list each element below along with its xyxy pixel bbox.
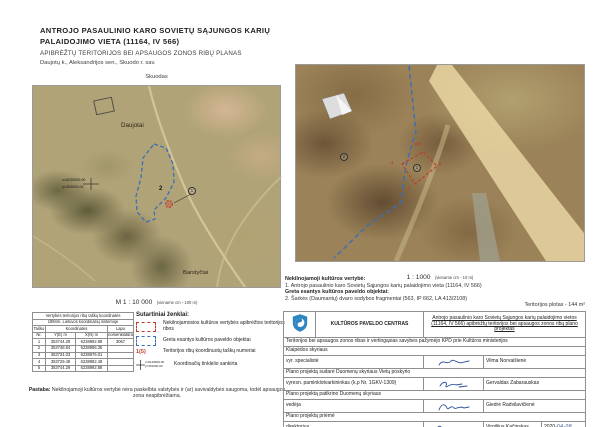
overview-scale-value: M 1 : 10 000 (116, 299, 153, 306)
coord-nr: 4 (33, 359, 46, 366)
coord-row: 4 353729.48 6238982.48 (33, 359, 134, 366)
signature-4-icon (434, 423, 474, 427)
approval-header-row: KULTŪROS PAVELDO CENTRAS Antrojo pasauli… (284, 312, 586, 338)
role-director: direktorius (284, 422, 424, 427)
signature-cell-4 (424, 422, 484, 427)
boundary-point-label-2: 2 (439, 161, 441, 166)
coord-sheet (108, 345, 134, 352)
town-label-barstyciai: Barstyčiai (183, 270, 208, 276)
grid-cross-icon: x=6129600.00 y=391000.00 (136, 359, 174, 371)
col-header-y: Y(E) m (46, 332, 76, 339)
heritage-values-block: Nekilnojamoji kultūros vertybė: 1. Antro… (285, 276, 585, 302)
role-chief-specialist: vyr. specialistė (284, 356, 424, 369)
col-header-x: X(N) m (76, 332, 108, 339)
legend-item-1-label: Nekilnojamosios kultūros vertybės apibrė… (163, 321, 286, 332)
signature-cell-2 (424, 378, 484, 391)
coord-sheet (108, 365, 134, 372)
coord-table-title: Vertybės teritorijos ribų taškų koordina… (33, 313, 134, 320)
approval-signature-row: direktorius Virgilijus Kačinskas 2020-04… (284, 422, 586, 427)
object-1-circled-number: 1 (413, 164, 421, 172)
coord-table-header-row-1: Taško Koordinatės Lapo (33, 326, 134, 333)
kpc-shield-logo-icon (292, 313, 308, 333)
note-label: Pastaba: (29, 387, 51, 393)
coord-x: 6238986.36 (76, 345, 108, 352)
heritage-territory-boundary-blue (136, 144, 174, 222)
map-legend: Sutartiniai ženklai: Nekilnojamosios kul… (136, 312, 286, 374)
col-header-coords: Koordinatės (46, 326, 108, 333)
role-senior-conservator: vyresn. paminklotvarkininkas (k.p Nr. 1G… (284, 378, 424, 391)
approval-row-marked-by: Teritorijos bei apsaugos zonos ribas ir … (284, 338, 586, 347)
legend-item-territory: Nekilnojamosios kultūros vertybės apibrė… (136, 321, 286, 332)
boundary-point-label-1: 1(5) (414, 141, 421, 146)
legend-item-2-label: Greta esantys kultūros paveldo objektai (163, 338, 251, 344)
document-title-line2: PALAIDOJIMO VIETA (11164, IV 566) (40, 37, 179, 46)
coord-table-header-row-2: Nr. Y(E) m X(N) m nomenklatūra (33, 332, 134, 339)
legend-item-3-label: Teritorijos ribų koordinuotų taškų numer… (163, 349, 256, 355)
approval-signature-row: vyr. specialistė Vilma Norvaišienė (284, 356, 586, 369)
approval-row-checked-by: Plano projektą patikrino Duomenų skyriau… (284, 391, 586, 400)
adjacent-object-boundary-blue (334, 66, 416, 258)
coord-y: 353729.48 (46, 359, 76, 366)
name-gervaldas-zabarauskas: Gervaldas Zabarauskas (484, 378, 586, 391)
coord-y: 353744.29 (46, 339, 76, 346)
name-giedre-radvilaviciene: Giedrė Radvilavičienė (484, 400, 586, 413)
coord-sheet (108, 352, 134, 359)
organization-name: KULTŪROS PAVELDO CENTRAS (316, 312, 424, 338)
approval-signature-row: vyresn. paminklotvarkininkas (k.p Nr. 1G… (284, 378, 586, 391)
approval-row-branch: Klaipėdos skyriaus (284, 347, 586, 356)
object-1-circled-number: 1 (188, 187, 196, 195)
note-block: Pastaba: Nekilnojamoji kultūros vertybė … (28, 387, 286, 400)
coord-sheet (108, 359, 134, 366)
values-heading-2: Greta esantys kultūros paveldo objektai: (285, 289, 585, 296)
detail-aerial-map: 1(5) 2 3 4 2 1 (295, 64, 585, 262)
legend-item-4-label: Koordinačių tinklelio sankirta (174, 362, 237, 368)
red-dashed-boundary-icon (136, 322, 163, 332)
values-heading-1: Nekilnojamoji kultūros vertybė: (285, 276, 585, 283)
coord-nr: 1 (33, 339, 46, 346)
signature-cell-3 (424, 400, 484, 413)
coord-y: 353748.84 (46, 345, 76, 352)
coord-x: 6238976.01 (76, 352, 108, 359)
object-2-number-label: 2 (159, 186, 162, 192)
coord-row: 1 353744.29 6238992.88 3067 (33, 339, 134, 346)
coord-nr: 2 (33, 345, 46, 352)
overview-map-scale: M 1 : 10 000 (viename cm - 100 m) (32, 291, 281, 309)
approval-date: 2020-04-08 (542, 422, 586, 427)
grid-coordinate-x-label: x=6239000.00 (62, 178, 85, 182)
legend-item-adjacent: Greta esantys kultūros paveldo objektai (136, 336, 286, 346)
name-vilma-norvaisiene: Vilma Norvaišienė (484, 356, 586, 369)
coord-x: 6238992.88 (76, 339, 108, 346)
grid-cross-y-sample: y=391000.00 (145, 364, 162, 368)
legend-item-point-numbers: 1(5) Teritorijos ribų koordinuotų taškų … (136, 349, 286, 355)
map-town-label-skuodas: Skuodas (32, 74, 281, 80)
object-2-circled-number: 2 (340, 153, 348, 161)
coord-x: 6238982.48 (76, 359, 108, 366)
values-item-1: 1. Antrojo pasaulinio karo Sovietų Sąjun… (285, 283, 585, 290)
overview-aerial-map: Daujotai Barstyčiai x=6239000.00 y=35300… (32, 85, 281, 288)
coord-y: 353734.03 (46, 352, 76, 359)
approval-row-prepared-by: Plano projektą sudarė Duomenų skyriaus V… (284, 369, 586, 378)
approval-signature-row: vedėja Giedrė Radvilavičienė (284, 400, 586, 413)
signature-cell-1 (424, 356, 484, 369)
signature-3-icon (437, 401, 471, 411)
legend-title: Sutartiniai ženklai: (136, 312, 286, 318)
col-header-point: Taško (33, 326, 46, 333)
coord-x: 6238992.88 (76, 365, 108, 372)
col-header-nr: Nr. (33, 332, 46, 339)
project-title: Antrojo pasaulinio karo Sovietų Sąjungos… (424, 312, 586, 338)
note-text: Nekilnojamoji kultūros vertybė nėra pask… (52, 387, 285, 399)
kpc-logo-cell (284, 312, 316, 338)
coord-y: 353744.29 (46, 365, 76, 372)
overview-scale-note: (viename cm - 100 m) (157, 300, 198, 305)
coordinates-table: Vertybės teritorijos ribų taškų koordina… (32, 312, 134, 372)
document-subtitle: APIBRĖŽTŲ TERITORIJOS BEI APSAUGOS ZONOS… (40, 50, 242, 57)
col-header-sheet: Lapo (108, 326, 134, 333)
coord-row: 5 353744.29 6238992.88 (33, 365, 134, 372)
village-label-daujotai: Daujotai (121, 122, 144, 129)
territory-area-label: Teritorijos plotas - 144 m² (455, 302, 585, 308)
point-number-icon: 1(5) (136, 349, 163, 355)
legend-item-grid-cross: x=6129600.00 y=391000.00 Koordinačių tin… (136, 359, 286, 371)
burial-site-marker-red (166, 201, 173, 208)
coord-nr: 5 (33, 365, 46, 372)
coord-table-subtitle: 1994m. Lietuvos koordinačių sistemoje (33, 319, 134, 326)
coord-row: 2 353748.84 6238986.36 (33, 345, 134, 352)
approval-table: KULTŪROS PAVELDO CENTRAS Antrojo pasauli… (283, 311, 586, 427)
approval-row-accepted-by: Plano projektą priėmė (284, 413, 586, 422)
boundary-point-label-3: 3 (408, 185, 410, 190)
boundary-point-label-4: 4 (391, 160, 393, 165)
signature-1-icon (437, 357, 471, 367)
document-location: Daujotų k., Aleksandrijos sen., Skuodo r… (40, 60, 156, 66)
document-title-line1: ANTROJO PASAULINIO KARO SOVIETŲ SĄJUNGOS… (40, 26, 270, 35)
role-head: vedėja (284, 400, 424, 413)
col-header-nomenclature: nomenklatūra (108, 332, 134, 339)
heritage-boundary-plan-document: ANTROJO PASAULINIO KARO SOVIETŲ SĄJUNGOS… (0, 0, 600, 427)
name-virgilijus-kacinskas: Virgilijus Kačinskas (484, 422, 542, 427)
signature-2-icon (437, 379, 471, 389)
point-number-sample: 1(5) (136, 349, 146, 355)
coord-nr: 3 (33, 352, 46, 359)
coord-sheet: 3067 (108, 339, 134, 346)
grid-coordinate-y-label: y=353000.00 (62, 185, 83, 189)
coord-table-title-row: Vertybės teritorijos ribų taškų koordina… (33, 313, 134, 320)
coord-row: 3 353734.03 6238976.01 (33, 352, 134, 359)
blue-dashed-boundary-icon (136, 336, 163, 346)
coord-table-subtitle-row: 1994m. Lietuvos koordinačių sistemoje (33, 319, 134, 326)
